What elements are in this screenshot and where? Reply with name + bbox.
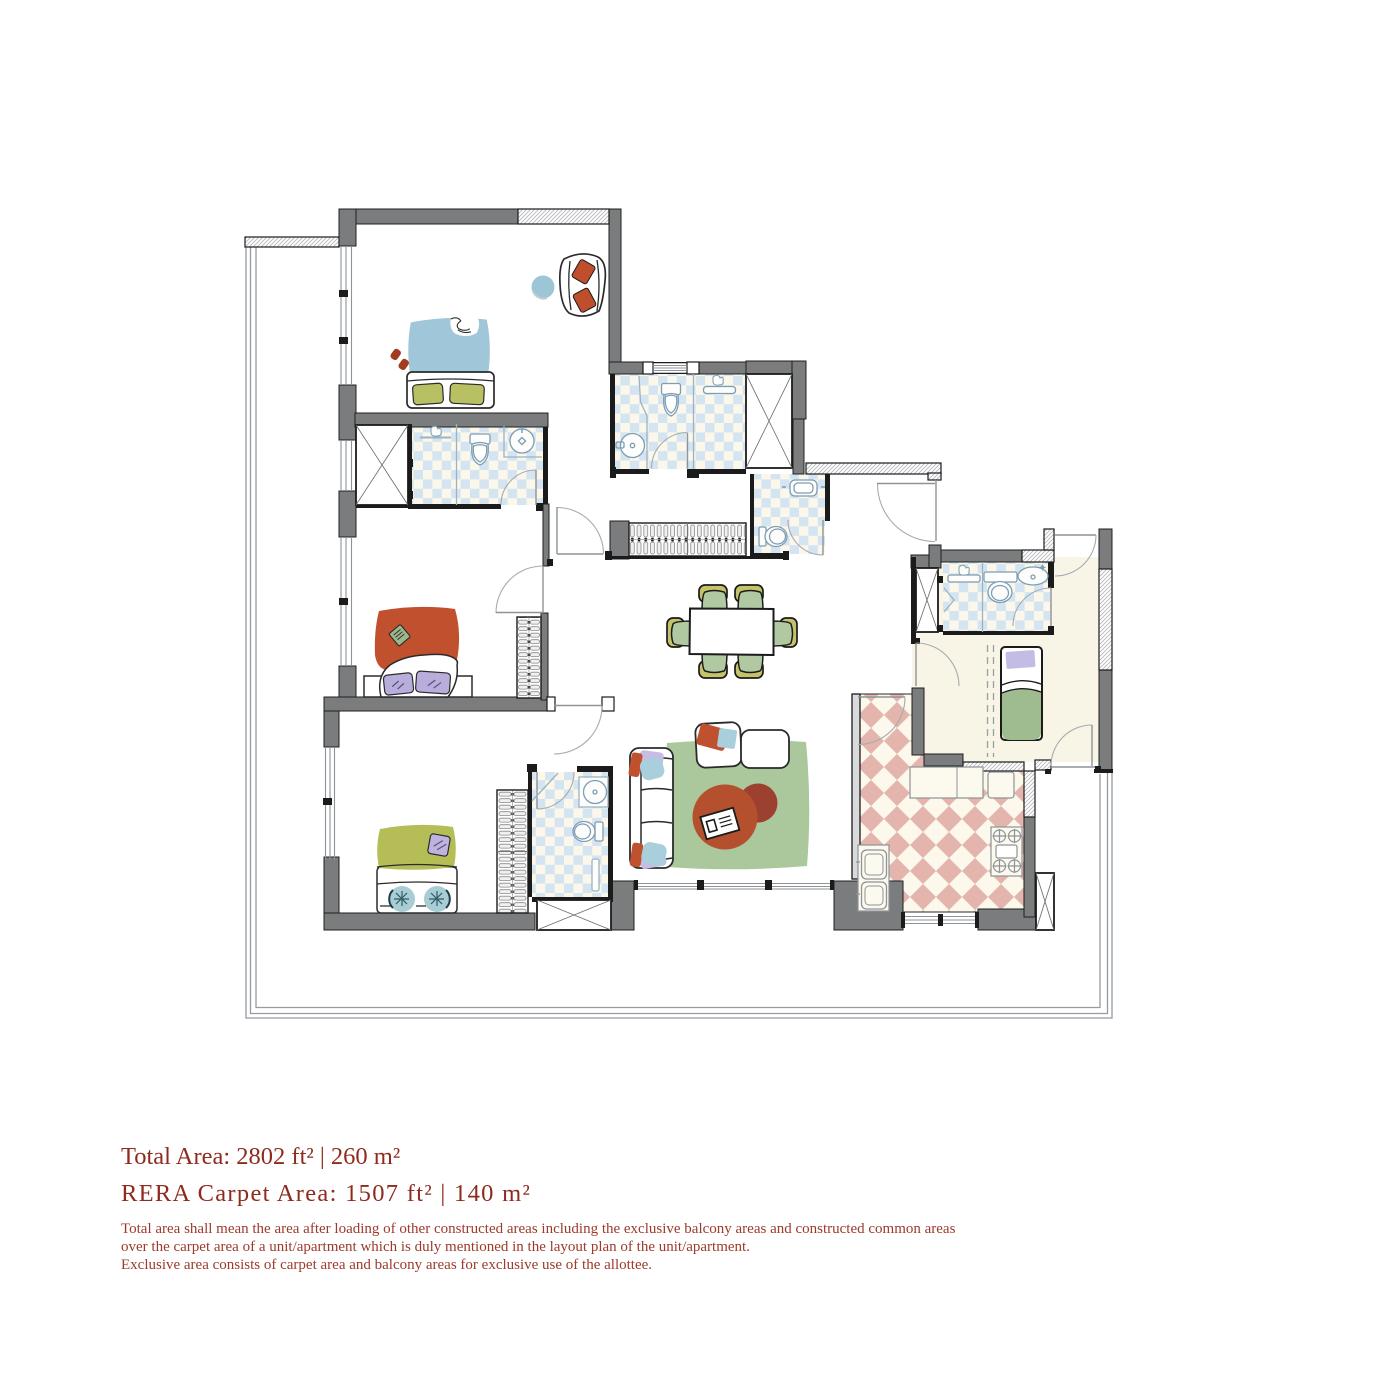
svg-text:Total area shall mean the area: Total area shall mean the area after loa… bbox=[121, 1221, 956, 1237]
svg-text:over the carpet area of a unit: over the carpet area of a unit/apartment… bbox=[121, 1239, 750, 1255]
svg-text:Exclusive area consists of car: Exclusive area consists of carpet area a… bbox=[121, 1257, 652, 1273]
svg-text:RERA Carpet Area: 1507 ft² | 1: RERA Carpet Area: 1507 ft² | 140 m² bbox=[121, 1180, 531, 1207]
svg-text:Total Area: 2802 ft² | 260 m²: Total Area: 2802 ft² | 260 m² bbox=[121, 1143, 400, 1170]
